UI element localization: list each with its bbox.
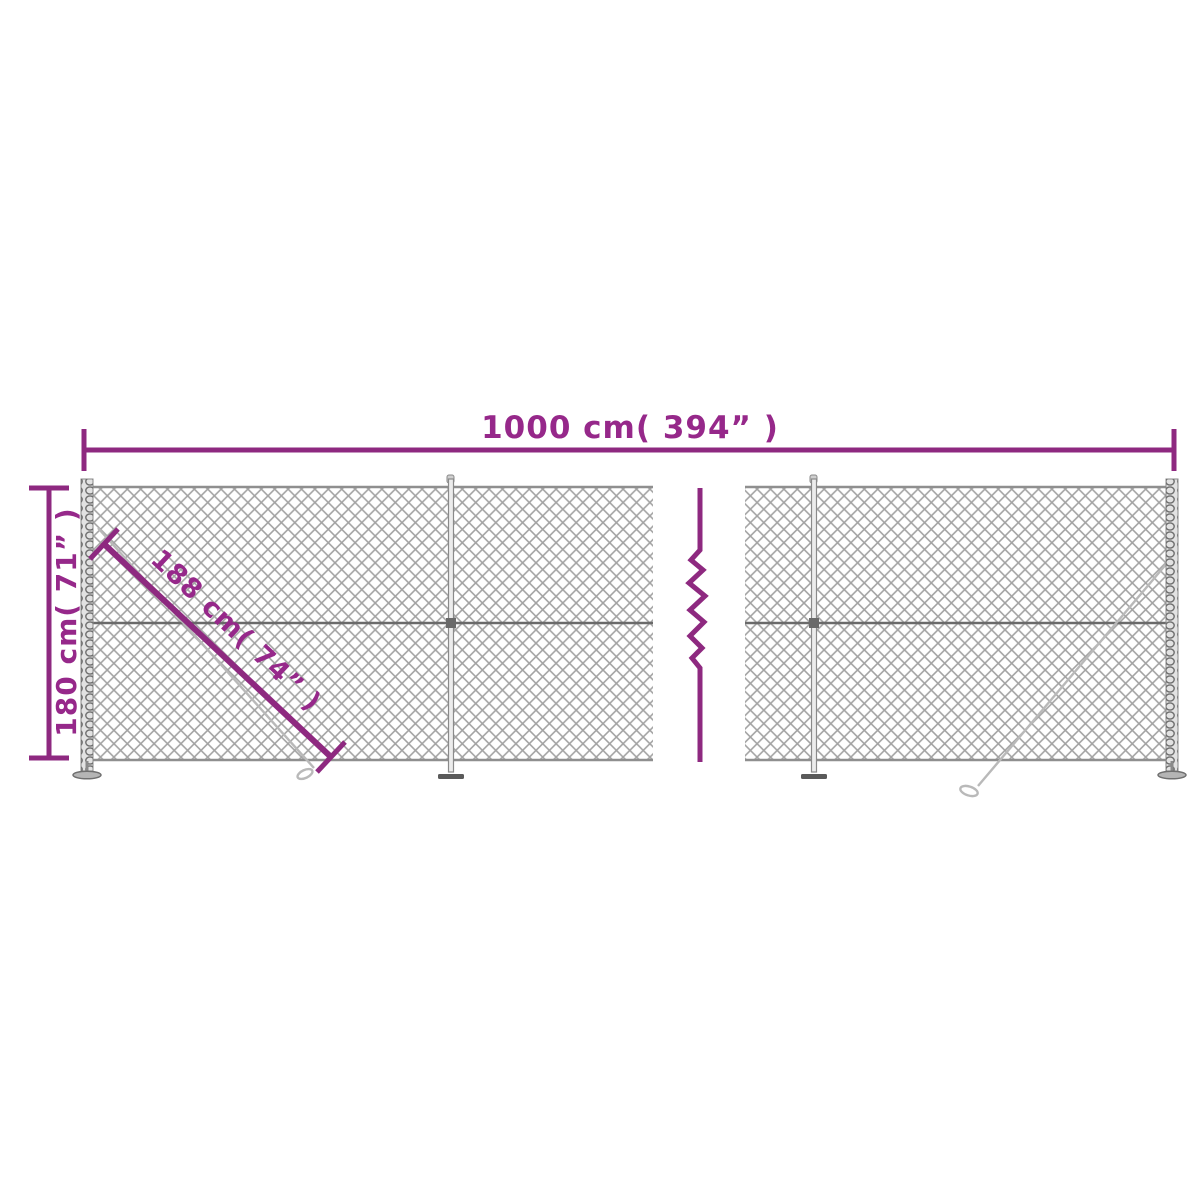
post-base-flange [801, 774, 827, 779]
post-base-flange [438, 774, 464, 779]
height-dimension-label: 180 cm( 71” ) [50, 507, 83, 736]
fence-dimension-diagram: 1000 cm( 394” ) 180 cm( 71” ) 188 cm( 74… [0, 0, 1200, 1200]
post-base-flange [73, 771, 101, 779]
post-base-flange [1158, 771, 1186, 779]
diagram-svg: 1000 cm( 394” ) 180 cm( 71” ) 188 cm( 74… [0, 0, 1200, 1200]
wire-clip [809, 618, 819, 628]
wire-clip [446, 618, 456, 628]
width-dimension-label: 1000 cm( 394” ) [481, 410, 779, 446]
